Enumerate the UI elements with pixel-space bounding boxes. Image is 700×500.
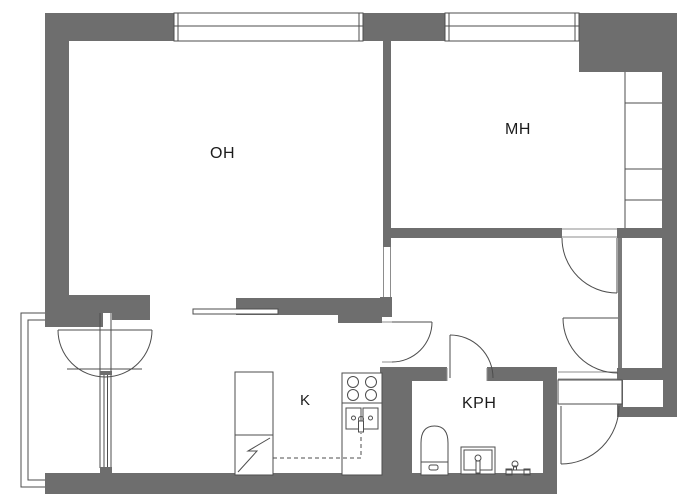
floorplan-drawing bbox=[0, 0, 700, 500]
kitchen-door-opening bbox=[382, 317, 392, 367]
window-mh bbox=[445, 13, 579, 41]
wall-left bbox=[45, 13, 69, 327]
mh-closet bbox=[625, 72, 662, 228]
wall-bottom bbox=[45, 473, 557, 494]
counter-ledge bbox=[193, 309, 278, 314]
wall-mh-south-right bbox=[617, 228, 677, 238]
wall-oh-south-left bbox=[45, 295, 103, 327]
front-door-leaf-closed bbox=[558, 380, 622, 404]
entrance-shaft bbox=[623, 380, 663, 407]
wall-kph-top-left bbox=[412, 367, 447, 381]
kitchen-fixtures bbox=[193, 309, 382, 475]
wall-oh-south-stub bbox=[112, 313, 150, 320]
fridge-icon bbox=[235, 372, 273, 435]
balcony-railing-inner bbox=[28, 320, 45, 480]
room-label-mh: MH bbox=[505, 121, 531, 139]
window-glass bbox=[174, 13, 363, 41]
room-label-oh: OH bbox=[210, 145, 235, 163]
kph-door-opening bbox=[447, 367, 487, 381]
wall-kph-top-right bbox=[487, 367, 557, 381]
wall-partition-oh-mh bbox=[383, 41, 391, 238]
glass-wall-cap bbox=[100, 371, 112, 375]
mh-door-arc bbox=[562, 238, 617, 293]
room-label-kph: KPH bbox=[462, 395, 496, 413]
kph-fixtures bbox=[421, 426, 530, 475]
wall-kph-right bbox=[543, 381, 557, 473]
wall-kph-left bbox=[380, 367, 412, 473]
wall-right bbox=[662, 13, 677, 417]
wall-hall-thin bbox=[618, 238, 622, 368]
balcony-railing-outer bbox=[21, 313, 45, 487]
front-door-opening bbox=[558, 368, 617, 380]
oh-hall-passage bbox=[383, 247, 391, 297]
balcony bbox=[21, 313, 152, 487]
window-glass bbox=[445, 13, 579, 41]
stove-icon bbox=[342, 373, 382, 403]
window-oh bbox=[174, 13, 363, 41]
floorplan: OH MH K KPH bbox=[0, 0, 700, 500]
glass-wall-cap bbox=[100, 467, 112, 473]
hall-door-arc bbox=[563, 318, 618, 373]
wall-partition-stub bbox=[383, 238, 391, 247]
balcony-door-swing-arc bbox=[58, 330, 152, 377]
wall-top-pier bbox=[363, 13, 445, 41]
kitchen-door-arc bbox=[392, 322, 432, 362]
tap-valve-bar bbox=[506, 470, 530, 474]
faucet-icon bbox=[476, 461, 480, 473]
kitchen-worktop bbox=[342, 403, 382, 475]
front-door-arc bbox=[561, 406, 619, 464]
toilet-icon bbox=[421, 426, 448, 475]
wall-mh-south-left bbox=[383, 228, 562, 238]
room-label-k: K bbox=[300, 392, 311, 409]
faucet-icon bbox=[359, 421, 364, 432]
